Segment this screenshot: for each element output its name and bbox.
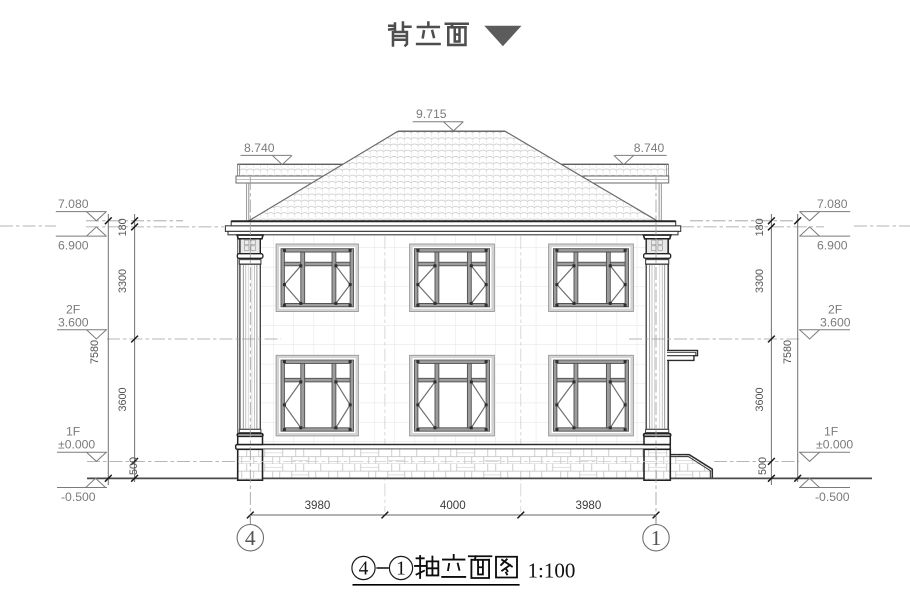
svg-text:3300: 3300 — [117, 269, 129, 293]
svg-text:8.740: 8.740 — [244, 141, 275, 155]
svg-text:1: 1 — [651, 526, 662, 550]
svg-text:3600: 3600 — [754, 387, 766, 411]
svg-text:3980: 3980 — [305, 499, 331, 512]
svg-text:3300: 3300 — [754, 269, 766, 293]
svg-text:180: 180 — [117, 218, 129, 236]
svg-text:±0.000: ±0.000 — [816, 438, 853, 452]
svg-text:1F: 1F — [66, 425, 80, 439]
svg-text:7580: 7580 — [782, 340, 794, 364]
svg-text:2F: 2F — [828, 302, 842, 316]
svg-text:8.740: 8.740 — [634, 141, 665, 155]
svg-text:4: 4 — [245, 526, 256, 550]
svg-text:3.600: 3.600 — [820, 315, 851, 329]
svg-text:4: 4 — [359, 559, 369, 580]
svg-text:7.080: 7.080 — [817, 197, 848, 211]
svg-text:1F: 1F — [824, 425, 838, 439]
svg-text:-0.500: -0.500 — [61, 490, 96, 504]
svg-text:-0.500: -0.500 — [815, 490, 850, 504]
svg-text:3.600: 3.600 — [58, 315, 89, 329]
svg-text:4000: 4000 — [440, 499, 466, 512]
svg-text:2F: 2F — [66, 302, 80, 316]
svg-text:3980: 3980 — [576, 499, 602, 512]
svg-text:1:100: 1:100 — [528, 559, 576, 583]
svg-text:9.715: 9.715 — [416, 107, 447, 121]
svg-text:7580: 7580 — [89, 340, 101, 364]
svg-text:6.900: 6.900 — [817, 239, 848, 253]
svg-text:±0.000: ±0.000 — [58, 438, 95, 452]
svg-text:3600: 3600 — [117, 387, 129, 411]
svg-text:7.080: 7.080 — [58, 197, 89, 211]
svg-text:1: 1 — [396, 559, 406, 580]
svg-text:6.900: 6.900 — [58, 239, 89, 253]
svg-text:180: 180 — [754, 218, 766, 236]
svg-text:500: 500 — [128, 457, 140, 475]
svg-text:500: 500 — [757, 457, 769, 475]
